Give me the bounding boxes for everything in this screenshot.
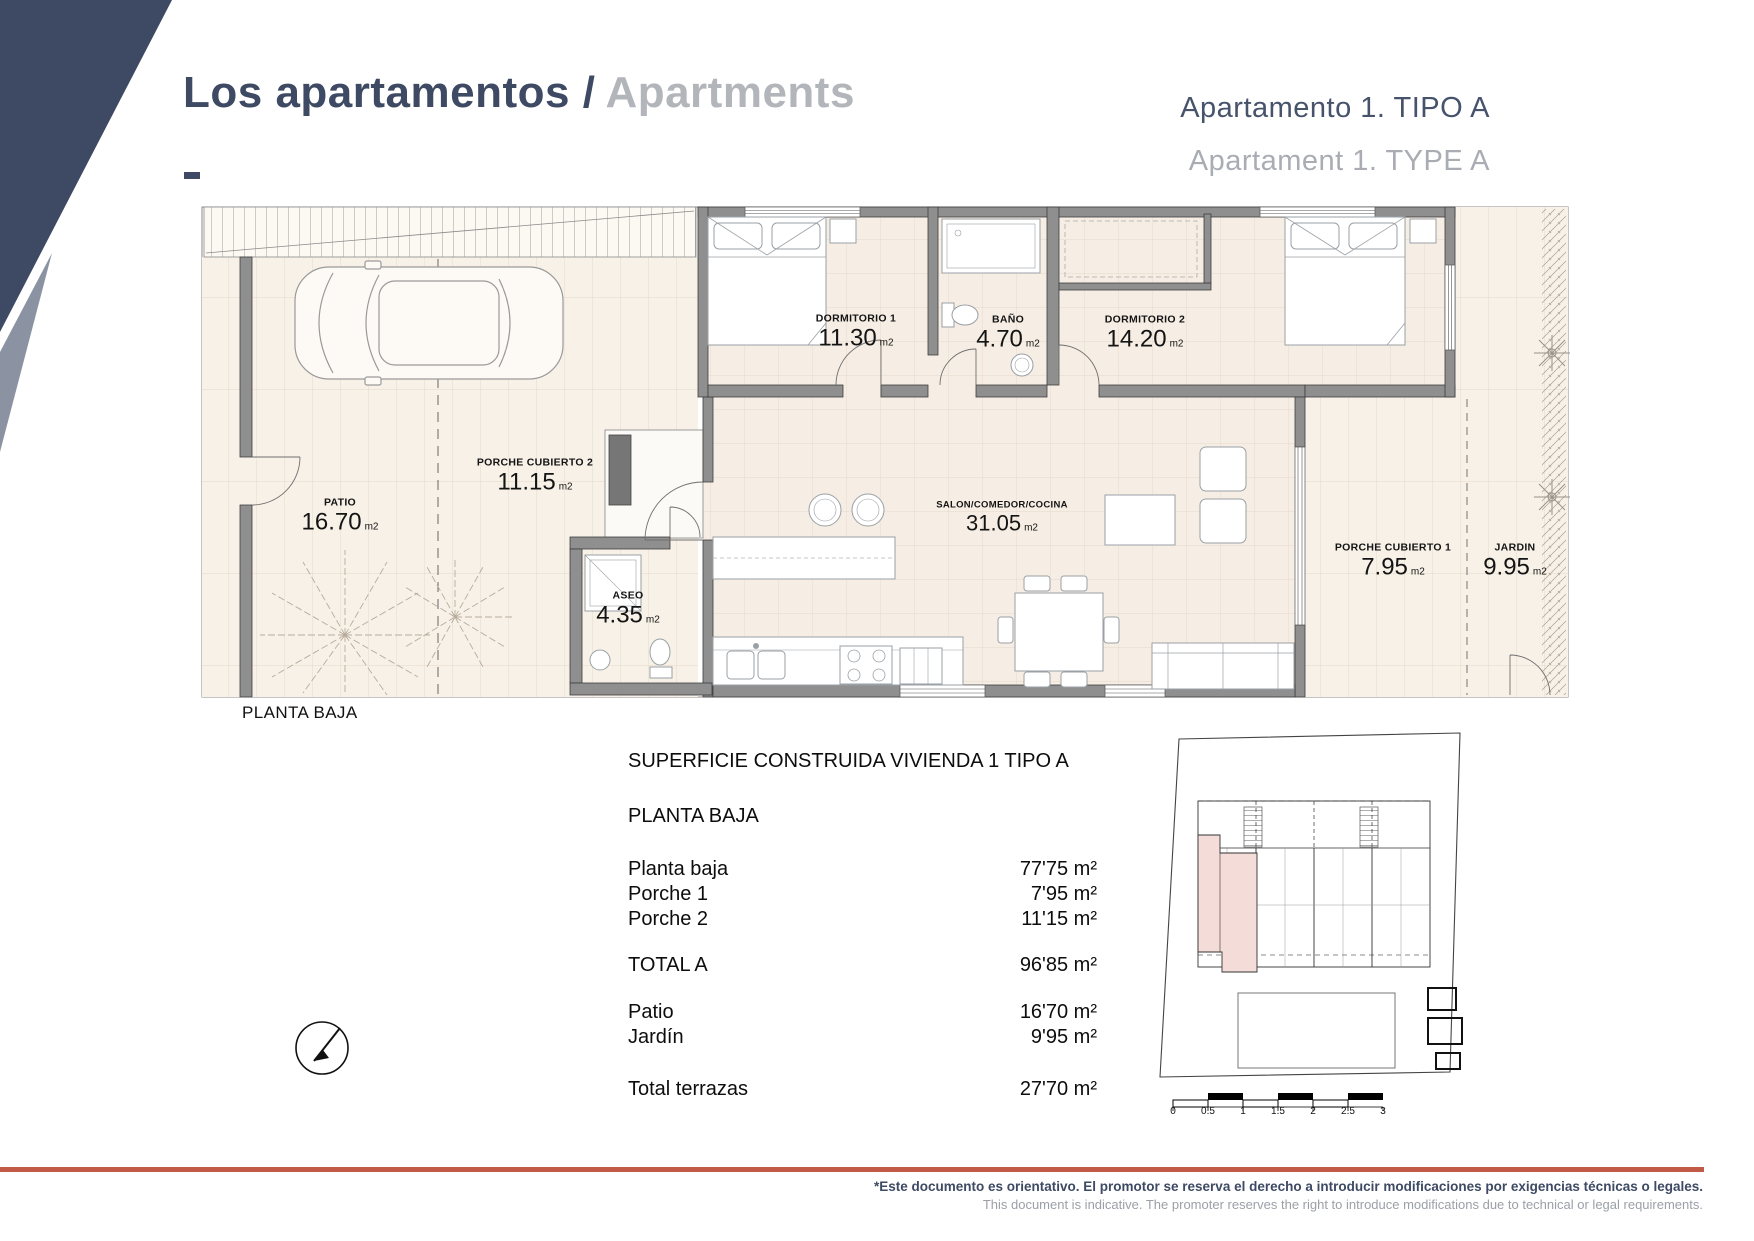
table-row: Patio 16'70 m² [628,1000,1097,1025]
table-row: Porche 1 7'95 m² [628,882,1097,907]
room-label-salon-comedor-cocina: SALON/COMEDOR/COCINA 31.05m2 [936,500,1068,535]
room-area: 16.70m2 [302,509,379,536]
unit-row [1198,801,1430,972]
scale-tick-label: 2 [1310,1106,1316,1117]
toilet-icon [650,639,672,678]
room-label-dormitorio-1: DORMITORIO 1 11.30m2 [816,314,896,353]
room-area: 11.15m2 [477,469,593,496]
armchair-icon [1200,499,1246,543]
row-label: TOTAL A [628,953,708,978]
bed-icon [708,217,826,345]
row-label: Porche 2 [628,907,708,932]
title-underscore [184,172,200,179]
car-illustration [295,261,563,385]
unit-title-en: Apartament 1. TYPE A [1180,135,1490,188]
bathtub-icon [942,219,1040,273]
row-label: Jardín [628,1025,684,1050]
sink-icon [590,650,610,670]
scale-tick-label: 3 [1380,1106,1386,1117]
scale-tick-label: 2.5 [1341,1106,1355,1117]
water-heater-icon [609,435,631,505]
room-label-jardin: JARDIN 9.95m2 [1483,543,1547,582]
toilet-icon [942,303,978,327]
surface-table-title: SUPERFICIE CONSTRUIDA VIVIENDA 1 TIPO A [628,750,1097,773]
scale-tick-label: 1 [1240,1106,1246,1117]
bed-icon [1285,217,1405,345]
surface-table-section: PLANTA BAJA [628,805,1097,828]
stairs-icon [1360,807,1378,847]
room-area: 11.30m2 [816,325,896,352]
scale-tick-label: 1.5 [1271,1106,1285,1117]
corner-triangle-navy [0,0,172,332]
unit-title-es: Apartamento 1. TIPO A [1180,82,1490,135]
footer-disclaimer: *Este documento es orientativo. El promo… [874,1178,1703,1214]
garden-hedge [1542,209,1566,695]
row-label: Total terrazas [628,1077,748,1102]
compass-icon [290,1015,354,1079]
room-area: 31.05m2 [936,511,1068,536]
armchair-icon [1200,447,1246,491]
stove-icon [840,646,892,684]
room-label-porche-cubierto-1: PORCHE CUBIERTO 1 7.95m2 [1335,543,1451,582]
pool-outline [1238,993,1395,1068]
table-row: Porche 2 11'15 m² [628,907,1097,932]
page-title-secondary: Apartments [605,68,855,117]
row-label: Porche 1 [628,882,708,907]
scale-tick-label: 0 [1170,1106,1176,1117]
stairs-icon [204,207,696,257]
table-row: Planta baja 77'75 m² [628,857,1097,882]
room-label-patio: PATIO 16.70m2 [302,498,379,537]
row-label: Planta baja [628,857,728,882]
room-area: 4.70m2 [976,326,1040,353]
plan-caption: PLANTA BAJA [242,703,358,723]
floor-plan-drawing [200,205,1570,705]
coffee-table-icon [1105,495,1175,545]
footer-accent-rule [0,1167,1704,1172]
room-area: 4.35m2 [596,602,660,629]
page-title: Los apartamentos /Apartments [183,68,855,118]
page-title-primary: Los apartamentos / [183,68,595,117]
table-row: Jardín 9'95 m² [628,1025,1097,1050]
scale-tick-label: 0.5 [1201,1106,1215,1117]
room-area: 9.95m2 [1483,554,1547,581]
site-plan [1040,655,1470,1125]
highlighted-unit [1198,835,1257,972]
surface-table: SUPERFICIE CONSTRUIDA VIVIENDA 1 TIPO A … [628,750,1097,1102]
table-row-terrace-total: Total terrazas 27'70 m² [628,1077,1097,1102]
footer-disclaimer-es: *Este documento es orientativo. El promo… [874,1178,1703,1196]
footer-disclaimer-en: This document is indicative. The promote… [874,1196,1703,1214]
stairs-icon [1244,807,1262,847]
room-label-porche-cubierto-2: PORCHE CUBIERTO 2 11.15m2 [477,458,593,497]
room-label-aseo: ASEO 4.35m2 [596,591,660,630]
room-label-bano: BAÑO 4.70m2 [976,315,1040,354]
room-label-dormitorio-2: DORMITORIO 2 14.20m2 [1105,315,1185,354]
table-row-total: TOTAL A 96'85 m² [628,953,1097,978]
room-area: 7.95m2 [1335,554,1451,581]
unit-title: Apartamento 1. TIPO A Apartament 1. TYPE… [1180,82,1490,188]
row-label: Patio [628,1000,674,1025]
room-area: 14.20m2 [1105,326,1185,353]
